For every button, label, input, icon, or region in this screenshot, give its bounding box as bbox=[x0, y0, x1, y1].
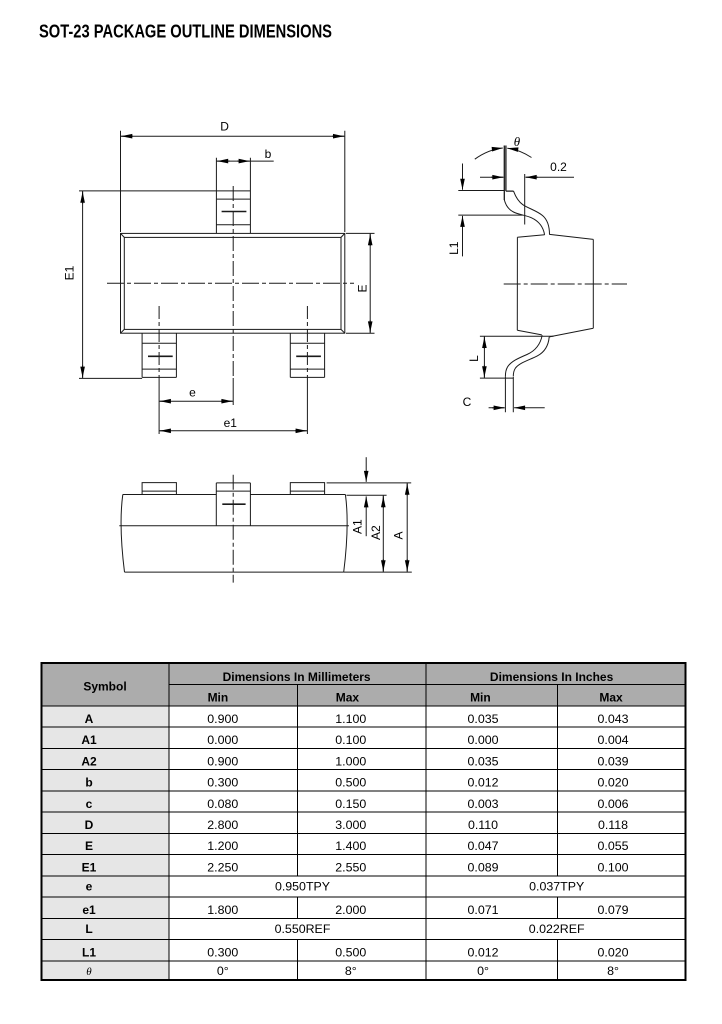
svg-text:0.035: 0.035 bbox=[467, 712, 498, 726]
svg-text:0.012: 0.012 bbox=[467, 945, 498, 959]
svg-text:1.800: 1.800 bbox=[207, 903, 238, 917]
svg-text:0.100: 0.100 bbox=[597, 860, 628, 874]
svg-text:0.003: 0.003 bbox=[467, 797, 498, 811]
svg-text:2.550: 2.550 bbox=[335, 860, 366, 874]
svg-text:8°: 8° bbox=[345, 964, 357, 978]
svg-text:0.300: 0.300 bbox=[207, 776, 238, 790]
svg-text:0.550REF: 0.550REF bbox=[275, 922, 331, 936]
svg-text:0.006: 0.006 bbox=[597, 797, 628, 811]
svg-text:θ: θ bbox=[514, 134, 521, 149]
svg-text:8°: 8° bbox=[607, 964, 619, 978]
svg-text:0.020: 0.020 bbox=[597, 945, 628, 959]
svg-text:0.000: 0.000 bbox=[207, 733, 238, 747]
svg-text:0.012: 0.012 bbox=[467, 776, 498, 790]
svg-text:0°: 0° bbox=[217, 964, 229, 978]
svg-text:e: e bbox=[189, 386, 196, 400]
svg-text:2.000: 2.000 bbox=[335, 903, 366, 917]
svg-text:0.100: 0.100 bbox=[335, 733, 366, 747]
svg-text:Max: Max bbox=[599, 691, 623, 705]
svg-text:E: E bbox=[356, 284, 370, 292]
svg-text:E1: E1 bbox=[63, 265, 77, 280]
svg-text:D: D bbox=[220, 120, 229, 134]
svg-text:0.037TPY: 0.037TPY bbox=[529, 880, 584, 894]
svg-text:A: A bbox=[392, 531, 406, 539]
svg-text:D: D bbox=[85, 818, 94, 832]
svg-text:L1: L1 bbox=[82, 945, 96, 959]
svg-text:Symbol: Symbol bbox=[83, 680, 126, 694]
svg-text:A1: A1 bbox=[81, 733, 97, 747]
svg-text:0.2: 0.2 bbox=[550, 160, 567, 174]
svg-text:2.800: 2.800 bbox=[207, 818, 238, 832]
svg-text:1.000: 1.000 bbox=[335, 754, 366, 768]
svg-text:Dimensions In Inches: Dimensions In Inches bbox=[490, 670, 614, 684]
svg-text:A: A bbox=[85, 712, 94, 726]
svg-text:0.035: 0.035 bbox=[467, 754, 498, 768]
svg-text:0.004: 0.004 bbox=[597, 733, 628, 747]
svg-text:e1: e1 bbox=[224, 416, 238, 430]
svg-text:0.039: 0.039 bbox=[597, 754, 628, 768]
svg-text:C: C bbox=[463, 395, 472, 409]
svg-text:0.500: 0.500 bbox=[335, 945, 366, 959]
svg-text:A1: A1 bbox=[351, 519, 365, 534]
svg-text:A2: A2 bbox=[369, 525, 383, 540]
svg-text:Min: Min bbox=[208, 691, 229, 705]
svg-text:θ: θ bbox=[86, 966, 92, 978]
svg-text:1.400: 1.400 bbox=[335, 839, 366, 853]
svg-text:0.079: 0.079 bbox=[597, 903, 628, 917]
svg-text:b: b bbox=[85, 776, 92, 790]
svg-text:0.000: 0.000 bbox=[467, 733, 498, 747]
svg-text:b: b bbox=[265, 147, 272, 161]
svg-text:L1: L1 bbox=[447, 241, 461, 255]
svg-text:3.000: 3.000 bbox=[335, 818, 366, 832]
svg-text:1.200: 1.200 bbox=[207, 839, 238, 853]
svg-text:0.300: 0.300 bbox=[207, 945, 238, 959]
svg-text:A2: A2 bbox=[81, 754, 97, 768]
svg-text:0.118: 0.118 bbox=[598, 818, 628, 832]
svg-text:0.150: 0.150 bbox=[335, 797, 366, 811]
svg-text:0°: 0° bbox=[477, 964, 489, 978]
svg-text:c: c bbox=[86, 797, 93, 811]
svg-text:E1: E1 bbox=[82, 860, 97, 874]
svg-text:0.043: 0.043 bbox=[597, 712, 628, 726]
svg-text:Dimensions In Millimeters: Dimensions In Millimeters bbox=[223, 670, 371, 684]
svg-text:0.055: 0.055 bbox=[597, 839, 628, 853]
svg-text:2.250: 2.250 bbox=[207, 860, 238, 874]
svg-text:0.900: 0.900 bbox=[207, 754, 238, 768]
svg-text:0.020: 0.020 bbox=[597, 776, 628, 790]
svg-text:L: L bbox=[85, 922, 92, 936]
svg-text:E: E bbox=[85, 839, 93, 853]
svg-text:1.100: 1.100 bbox=[335, 712, 366, 726]
svg-text:0.089: 0.089 bbox=[467, 860, 498, 874]
svg-text:0.022REF: 0.022REF bbox=[529, 922, 585, 936]
svg-text:0.080: 0.080 bbox=[207, 797, 238, 811]
svg-text:0.950TPY: 0.950TPY bbox=[275, 880, 330, 894]
svg-text:Min: Min bbox=[470, 691, 491, 705]
svg-text:e: e bbox=[86, 880, 93, 894]
svg-text:Max: Max bbox=[336, 691, 360, 705]
svg-text:L: L bbox=[467, 355, 481, 362]
svg-text:0.500: 0.500 bbox=[335, 776, 366, 790]
svg-text:SOT-23 PACKAGE OUTLINE DIMENSI: SOT-23 PACKAGE OUTLINE DIMENSIONS bbox=[39, 22, 332, 42]
svg-text:e1: e1 bbox=[82, 903, 96, 917]
svg-text:0.900: 0.900 bbox=[207, 712, 238, 726]
svg-text:0.110: 0.110 bbox=[468, 818, 498, 832]
svg-text:0.071: 0.071 bbox=[467, 903, 498, 917]
svg-text:0.047: 0.047 bbox=[467, 839, 498, 853]
